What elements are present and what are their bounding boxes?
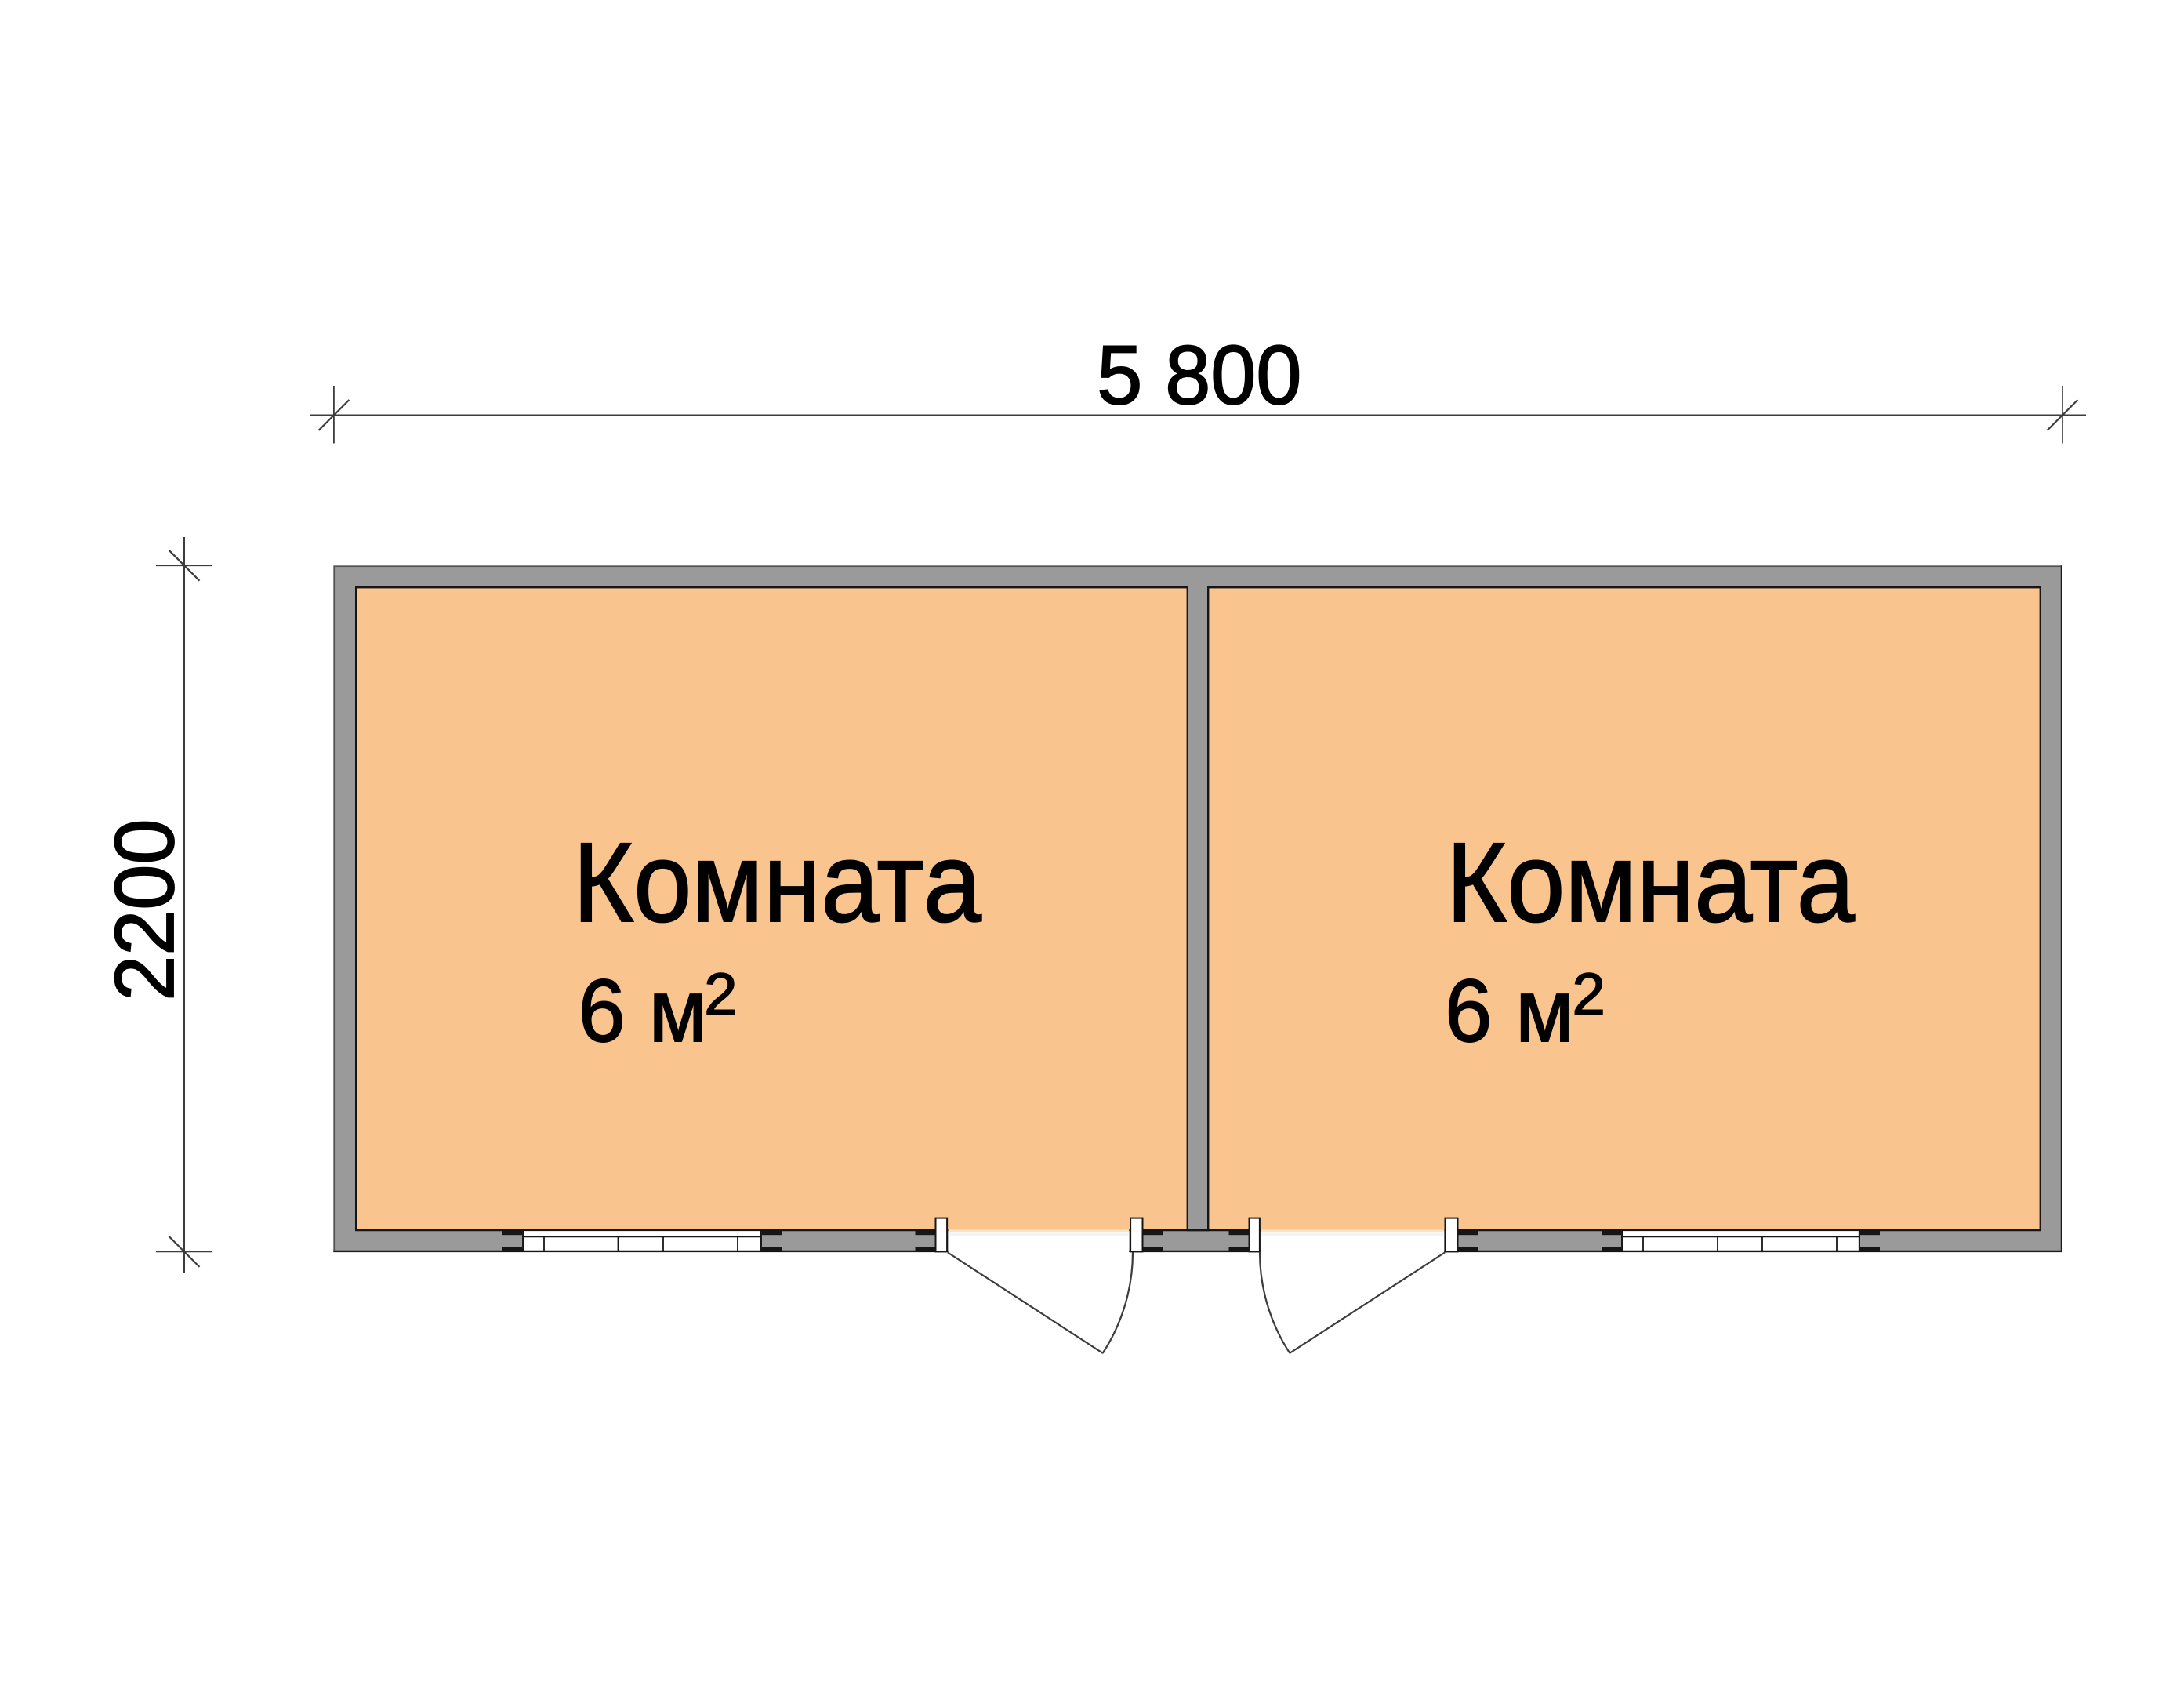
svg-text:6 м: 6 м	[1445, 961, 1573, 1060]
svg-text:6 м: 6 м	[579, 961, 707, 1060]
svg-text:2: 2	[704, 961, 737, 1028]
svg-text:5 800: 5 800	[1097, 328, 1301, 422]
svg-text:2200: 2200	[97, 819, 191, 1000]
svg-text:Комната: Комната	[1446, 819, 1856, 946]
svg-text:2: 2	[1573, 961, 1605, 1028]
svg-text:Комната: Комната	[573, 819, 982, 946]
